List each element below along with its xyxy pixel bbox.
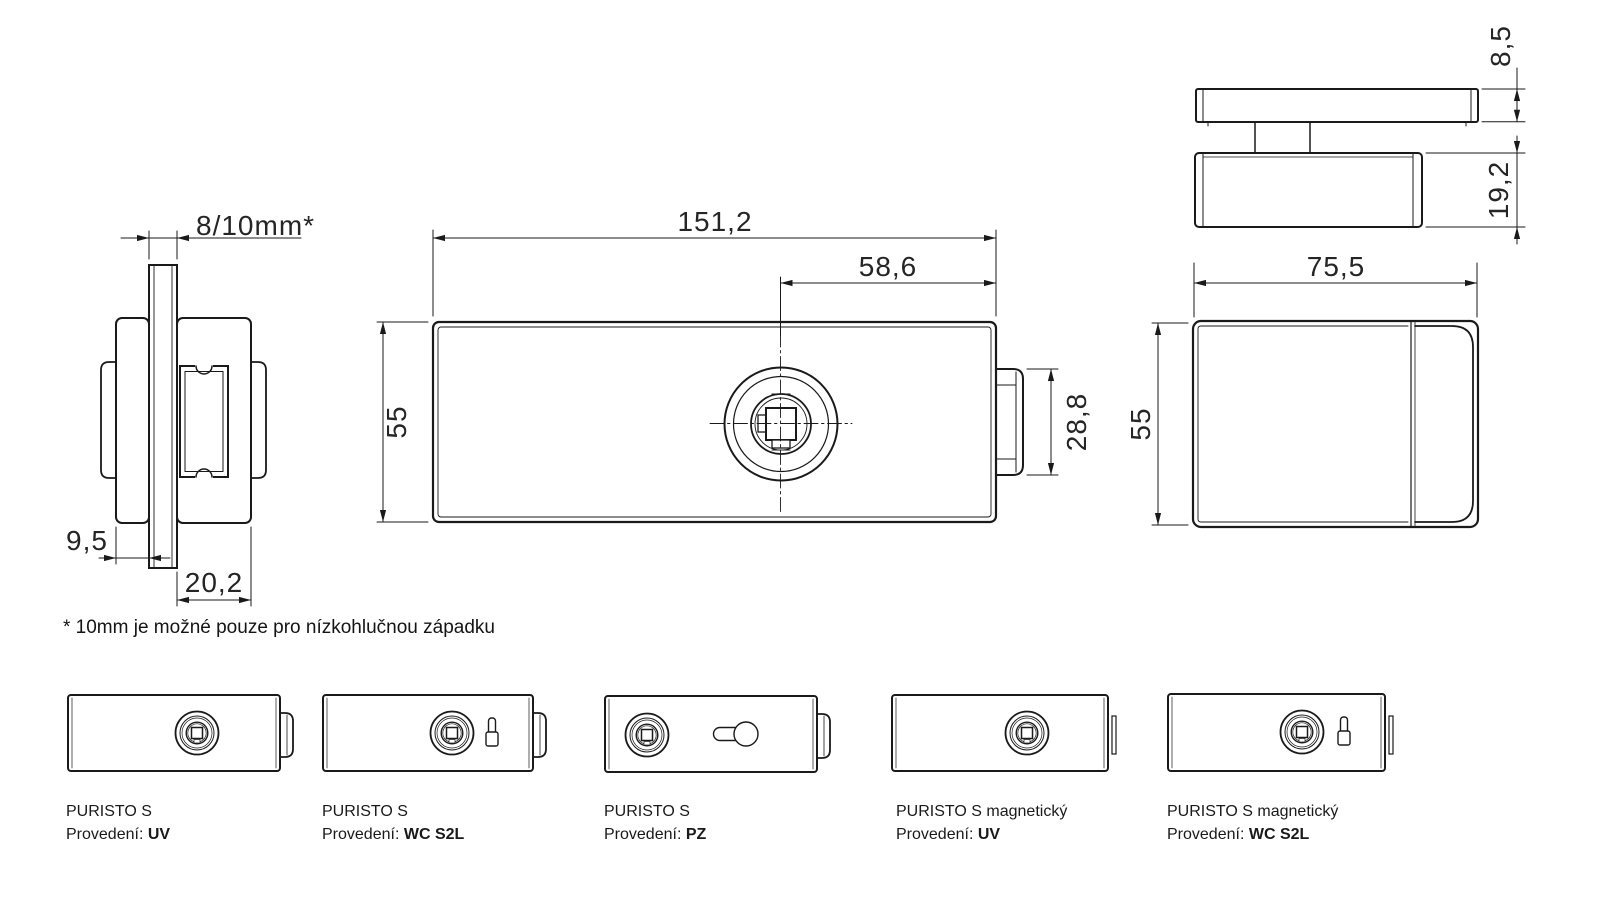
rosette-icon: [1006, 712, 1049, 755]
variant-label-magnetic-uv: PURISTO S magnetický Provedení: UV: [896, 800, 1067, 846]
variant-pz: [605, 696, 830, 772]
variant-name: PURISTO S: [604, 800, 706, 823]
end-body: [1193, 321, 1478, 527]
wc-thumbturn-icon: [1338, 717, 1350, 745]
variant-magnetic-uv: [892, 695, 1116, 771]
variant-label-wc-s2l: PURISTO S Provedení: WC S2L: [322, 800, 464, 846]
variant-provedeni: Provedení: UV: [896, 823, 1067, 846]
rosette-icon: [626, 714, 669, 757]
magnet-strike-mark: [1389, 716, 1393, 754]
variant-provedeni: Provedení: UV: [66, 823, 170, 846]
top-cover-plate: [1196, 89, 1478, 122]
dim-glass-thickness: 8/10mm*: [196, 210, 315, 242]
magnet-strike-mark: [1112, 716, 1116, 754]
front-view: [377, 230, 1058, 522]
rosette-icon: [431, 712, 474, 755]
variant-label-uv: PURISTO S Provedení: UV: [66, 800, 170, 846]
dim-cover-thickness: 8,5: [1485, 25, 1517, 67]
variant-wc-s2l: [323, 695, 546, 771]
variant-label-magnetic-wc-s2l: PURISTO S magnetický Provedení: WC S2L: [1167, 800, 1338, 846]
dim-inner-offset: 9,5: [66, 525, 108, 557]
variant-provedeni: Provedení: PZ: [604, 823, 706, 846]
side-right-tab: [251, 362, 266, 478]
side-body-left: [116, 318, 149, 523]
drawing-linework: [0, 0, 1600, 915]
dim-lines-cover-thickness: [1482, 68, 1525, 122]
variant-name: PURISTO S: [322, 800, 464, 823]
variant-name: PURISTO S magnetický: [1167, 800, 1338, 823]
variant-name: PURISTO S: [66, 800, 170, 823]
dim-top-width: 75,5: [1307, 251, 1366, 283]
dim-body-thickness: 19,2: [1483, 161, 1515, 220]
variant-provedeni: Provedení: WC S2L: [1167, 823, 1338, 846]
rosette-icon: [1281, 711, 1324, 754]
technical-drawing-canvas: 8/10mm* 9,5 20,2 151,2 58,6 55 28,8 8,5 …: [0, 0, 1600, 915]
front-body: [433, 322, 996, 522]
side-view: [99, 231, 301, 606]
dim-end-height: 55: [1125, 407, 1157, 440]
variant-name: PURISTO S magnetický: [896, 800, 1067, 823]
glass-panel: [149, 265, 177, 568]
dim-lines-end-height: [1152, 323, 1188, 525]
footnote: * 10mm je možné pouze pro nízkohlučnou z…: [63, 617, 495, 639]
rosette-icon: [176, 712, 219, 755]
variant-label-pz: PURISTO S Provedení: PZ: [604, 800, 706, 846]
end-view: [1152, 321, 1478, 527]
top-body: [1195, 153, 1422, 227]
dim-front-height: 55: [381, 405, 413, 438]
dim-spindle-offset: 58,6: [859, 251, 918, 283]
side-mechanism: [180, 366, 228, 477]
dim-body-depth: 20,2: [185, 567, 244, 599]
spindle-square-hole: [766, 408, 796, 440]
side-left-tab: [101, 362, 116, 478]
dim-latch-height: 28,8: [1061, 393, 1093, 452]
dim-lines-latch-height: [1027, 369, 1058, 475]
dim-front-width: 151,2: [677, 206, 752, 238]
dim-lines-inner-offset: [99, 527, 170, 564]
variant-provedeni: Provedení: WC S2L: [322, 823, 464, 846]
variant-magnetic-wc-s2l: [1168, 694, 1393, 771]
variant-uv: [68, 695, 293, 771]
